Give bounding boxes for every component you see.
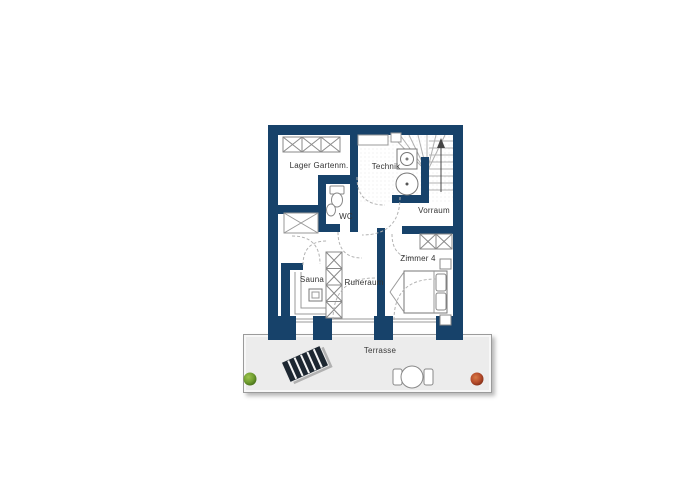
pillow-icon [436, 293, 446, 310]
wall-right [453, 125, 463, 322]
nightstand-icon [440, 259, 451, 269]
room-label-wc: WC [339, 212, 353, 221]
wall-top [268, 125, 463, 135]
plant-icon-green [244, 373, 257, 386]
nightstand-icon [440, 315, 451, 325]
wardrobe-icon [420, 234, 452, 249]
sink-icon [327, 204, 336, 216]
wall-vorraum-zimmer4 [402, 226, 453, 234]
wall-ruheraum-zimmer4 [377, 228, 385, 320]
sauna-heater-icon [309, 289, 322, 301]
storage-cabinet-icon [283, 137, 340, 152]
floorplan-drawing [0, 0, 700, 500]
terrace-table-icon [401, 366, 423, 388]
wall-wc-bottom [318, 224, 340, 232]
wall-wc-left [318, 175, 326, 232]
wall-stair-stub [421, 157, 429, 203]
pillar-south-1 [313, 316, 332, 340]
wall-sauna-left [281, 263, 290, 320]
room-label-lager: Lager Gartenm. [290, 161, 349, 170]
door-arc-hall [292, 236, 320, 264]
floorplan-canvas: Lager Gartenm. Technik WC Vorraum Sauna … [0, 0, 700, 500]
room-label-vorraum: Vorraum [418, 206, 450, 215]
room-label-zimmer4: Zimmer 4 [400, 254, 435, 263]
room-label-sauna: Sauna [300, 275, 324, 284]
plant-icon-red [471, 373, 484, 386]
terrace-chair-icon [424, 369, 433, 385]
bed-icon [390, 271, 447, 313]
room-label-terrasse: Terrasse [364, 346, 396, 355]
room-label-technik: Technik [372, 162, 401, 171]
sun-lounger-icon [281, 344, 332, 385]
glass-front-line [278, 319, 453, 322]
boiler-icon [396, 173, 418, 195]
shaft-cross-icon [284, 213, 318, 233]
room-label-ruheraum: Ruheraum [345, 278, 384, 287]
wall-left [268, 125, 278, 322]
pillow-icon [436, 274, 446, 291]
